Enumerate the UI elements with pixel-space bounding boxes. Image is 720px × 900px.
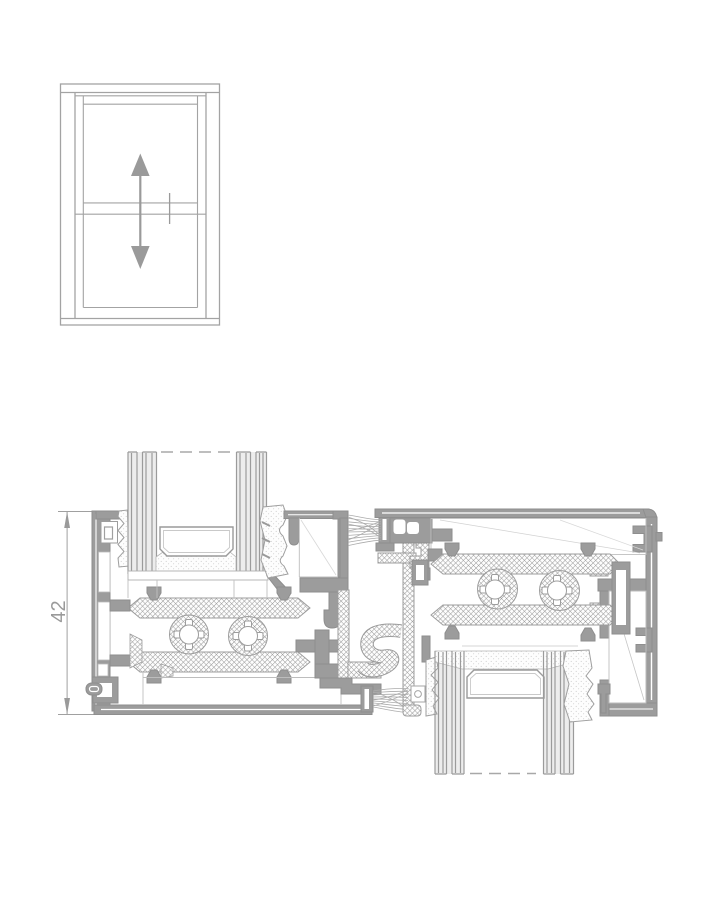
svg-text:42: 42 [48,600,70,622]
